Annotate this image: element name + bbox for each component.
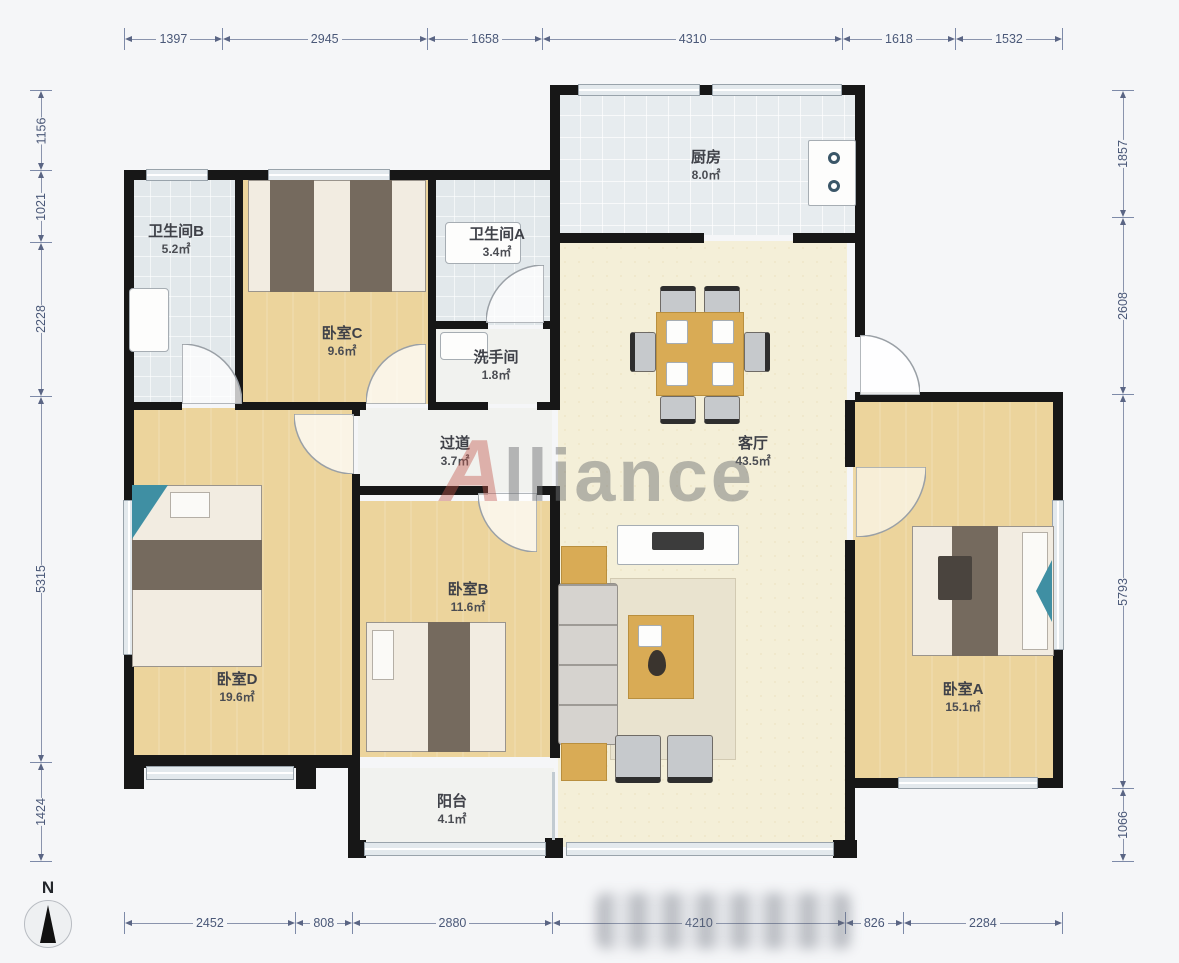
north-arrow-icon	[40, 905, 56, 943]
window	[146, 766, 294, 780]
tv	[652, 532, 704, 550]
dimension-strip-right: 1857260857931066	[1112, 90, 1134, 862]
plant-stand	[561, 546, 607, 584]
label-balcony: 阳台4.1㎡	[437, 793, 467, 827]
dimension-label: 1532	[992, 32, 1026, 46]
dining-chair	[704, 286, 740, 314]
dimension-strip-bottom: 2452808288042108262284	[124, 912, 1063, 934]
dimension-label: 2608	[1113, 292, 1133, 320]
stove-burner	[828, 152, 840, 164]
ottoman	[615, 735, 661, 783]
ottoman	[667, 735, 713, 783]
dining-chair	[744, 332, 770, 372]
dimension-label: 2945	[308, 32, 342, 46]
wall	[550, 88, 560, 180]
bed-b-pillow	[372, 630, 394, 680]
dimension-label: 4310	[676, 32, 710, 46]
dimension-segment: 1424	[30, 762, 52, 862]
dimension-label: 2452	[193, 916, 227, 930]
bed-c-blanket	[350, 180, 392, 292]
dimension-segment: 1066	[1112, 788, 1134, 862]
dimension-label: 826	[861, 916, 888, 930]
north-label: N	[24, 878, 72, 898]
bed-c-blanket	[270, 180, 314, 292]
label-hallway: 过道3.7㎡	[440, 435, 470, 469]
stove-burner	[828, 180, 840, 192]
place-setting	[712, 362, 734, 386]
wall	[833, 840, 857, 858]
label-bedroom-c: 卧室C9.6㎡	[322, 325, 363, 359]
wall	[550, 170, 560, 405]
dimension-label: 1857	[1113, 140, 1133, 168]
wall	[537, 402, 560, 410]
dimension-strip-top: 139729451658431016181532	[124, 28, 1063, 50]
table-decor	[648, 650, 666, 676]
window	[898, 777, 1038, 789]
wall	[124, 402, 182, 410]
dimension-label: 2284	[966, 916, 1000, 930]
dimension-segment: 1532	[955, 28, 1063, 50]
label-bedroom-a: 卧室A15.1㎡	[943, 681, 984, 715]
bed-d-pillow	[170, 492, 210, 518]
floorplan-canvas: 139729451658431016181532 245280828804210…	[0, 0, 1179, 963]
window	[712, 84, 842, 96]
table-tray	[638, 625, 662, 647]
label-bathroom-a: 卫生间A3.4㎡	[469, 226, 525, 260]
place-setting	[666, 362, 688, 386]
place-setting	[712, 320, 734, 344]
wall	[428, 170, 436, 410]
plant-stand	[561, 743, 607, 781]
wall	[428, 402, 488, 410]
dimension-segment: 1857	[1112, 90, 1134, 217]
dimension-label: 808	[310, 916, 337, 930]
dimension-segment: 808	[295, 912, 352, 934]
wall	[550, 233, 704, 243]
blurred-watermark	[596, 893, 852, 949]
stove	[808, 140, 856, 206]
window	[578, 84, 700, 96]
label-washroom: 洗手间1.8㎡	[473, 349, 518, 383]
dimension-label: 1618	[882, 32, 916, 46]
dining-chair	[630, 332, 656, 372]
dimension-segment: 1618	[842, 28, 955, 50]
dimension-label: 1424	[31, 798, 51, 826]
wall	[793, 233, 865, 243]
dimension-label: 2880	[436, 916, 470, 930]
entry-door	[860, 335, 920, 395]
wall	[352, 486, 488, 495]
wall	[845, 540, 855, 846]
wall	[352, 474, 360, 758]
dimension-segment: 1658	[427, 28, 543, 50]
bed-a-tray	[938, 556, 972, 600]
wall	[545, 838, 563, 858]
wall	[537, 486, 560, 495]
bed-b-blanket	[428, 622, 470, 752]
dimension-label: 5793	[1113, 578, 1133, 606]
label-living: 客厅43.5㎡	[735, 435, 770, 469]
dimension-label: 1066	[1113, 811, 1133, 839]
balcony-glass-door	[552, 772, 555, 840]
bedroom-c-door	[366, 344, 426, 404]
bathroom-a-door	[486, 265, 544, 323]
bedroom-b-door	[478, 493, 537, 552]
wall	[855, 85, 865, 337]
wall	[296, 755, 316, 789]
dimension-segment: 2880	[352, 912, 552, 934]
bathtub	[129, 288, 169, 352]
label-bathroom-b: 卫生间B5.2㎡	[148, 223, 204, 257]
sofa	[558, 583, 618, 745]
dimension-segment: 2452	[124, 912, 295, 934]
dimension-label: 1021	[31, 193, 51, 221]
dimension-segment: 4310	[542, 28, 841, 50]
dining-chair	[660, 396, 696, 424]
dimension-segment: 1021	[30, 170, 52, 241]
dimension-segment: 2945	[222, 28, 427, 50]
wall	[845, 400, 855, 467]
dimension-strip-left: 11561021222853151424	[30, 90, 52, 862]
north-indicator: N	[24, 878, 72, 948]
wall	[240, 402, 366, 410]
bed-d-blanket	[132, 540, 262, 590]
dining-chair	[660, 286, 696, 314]
dining-chair	[704, 396, 740, 424]
dimension-segment: 5315	[30, 396, 52, 762]
window	[146, 169, 208, 181]
dimension-segment: 2608	[1112, 217, 1134, 395]
dimension-segment: 5793	[1112, 394, 1134, 787]
dimension-segment: 1397	[124, 28, 222, 50]
place-setting	[666, 320, 688, 344]
dimension-label: 5315	[31, 566, 51, 594]
wall	[428, 321, 488, 329]
dimension-label: 2228	[31, 305, 51, 333]
dimension-label: 1658	[468, 32, 502, 46]
floorplan-drawing: 卫生间B5.2㎡ 卧室C9.6㎡ 卫生间A3.4㎡ 洗手间1.8㎡ 厨房8.0㎡…	[0, 0, 1179, 963]
dimension-label: 1156	[31, 117, 51, 144]
window	[364, 842, 546, 856]
label-kitchen: 厨房8.0㎡	[691, 149, 721, 183]
compass-circle	[24, 900, 72, 948]
dimension-segment: 1156	[30, 90, 52, 170]
label-bedroom-b: 卧室B11.6㎡	[448, 581, 489, 615]
dimension-label: 1397	[156, 32, 190, 46]
dimension-segment: 2228	[30, 242, 52, 396]
window	[566, 842, 834, 856]
bedroom-a-door	[856, 467, 926, 537]
wall	[124, 170, 134, 765]
dimension-segment: 2284	[903, 912, 1063, 934]
label-bedroom-d: 卧室D19.6㎡	[217, 671, 258, 705]
wall	[348, 755, 360, 850]
bedroom-d-door	[294, 414, 354, 474]
bathroom-b-door	[182, 344, 242, 404]
dimension-segment: 826	[845, 912, 903, 934]
